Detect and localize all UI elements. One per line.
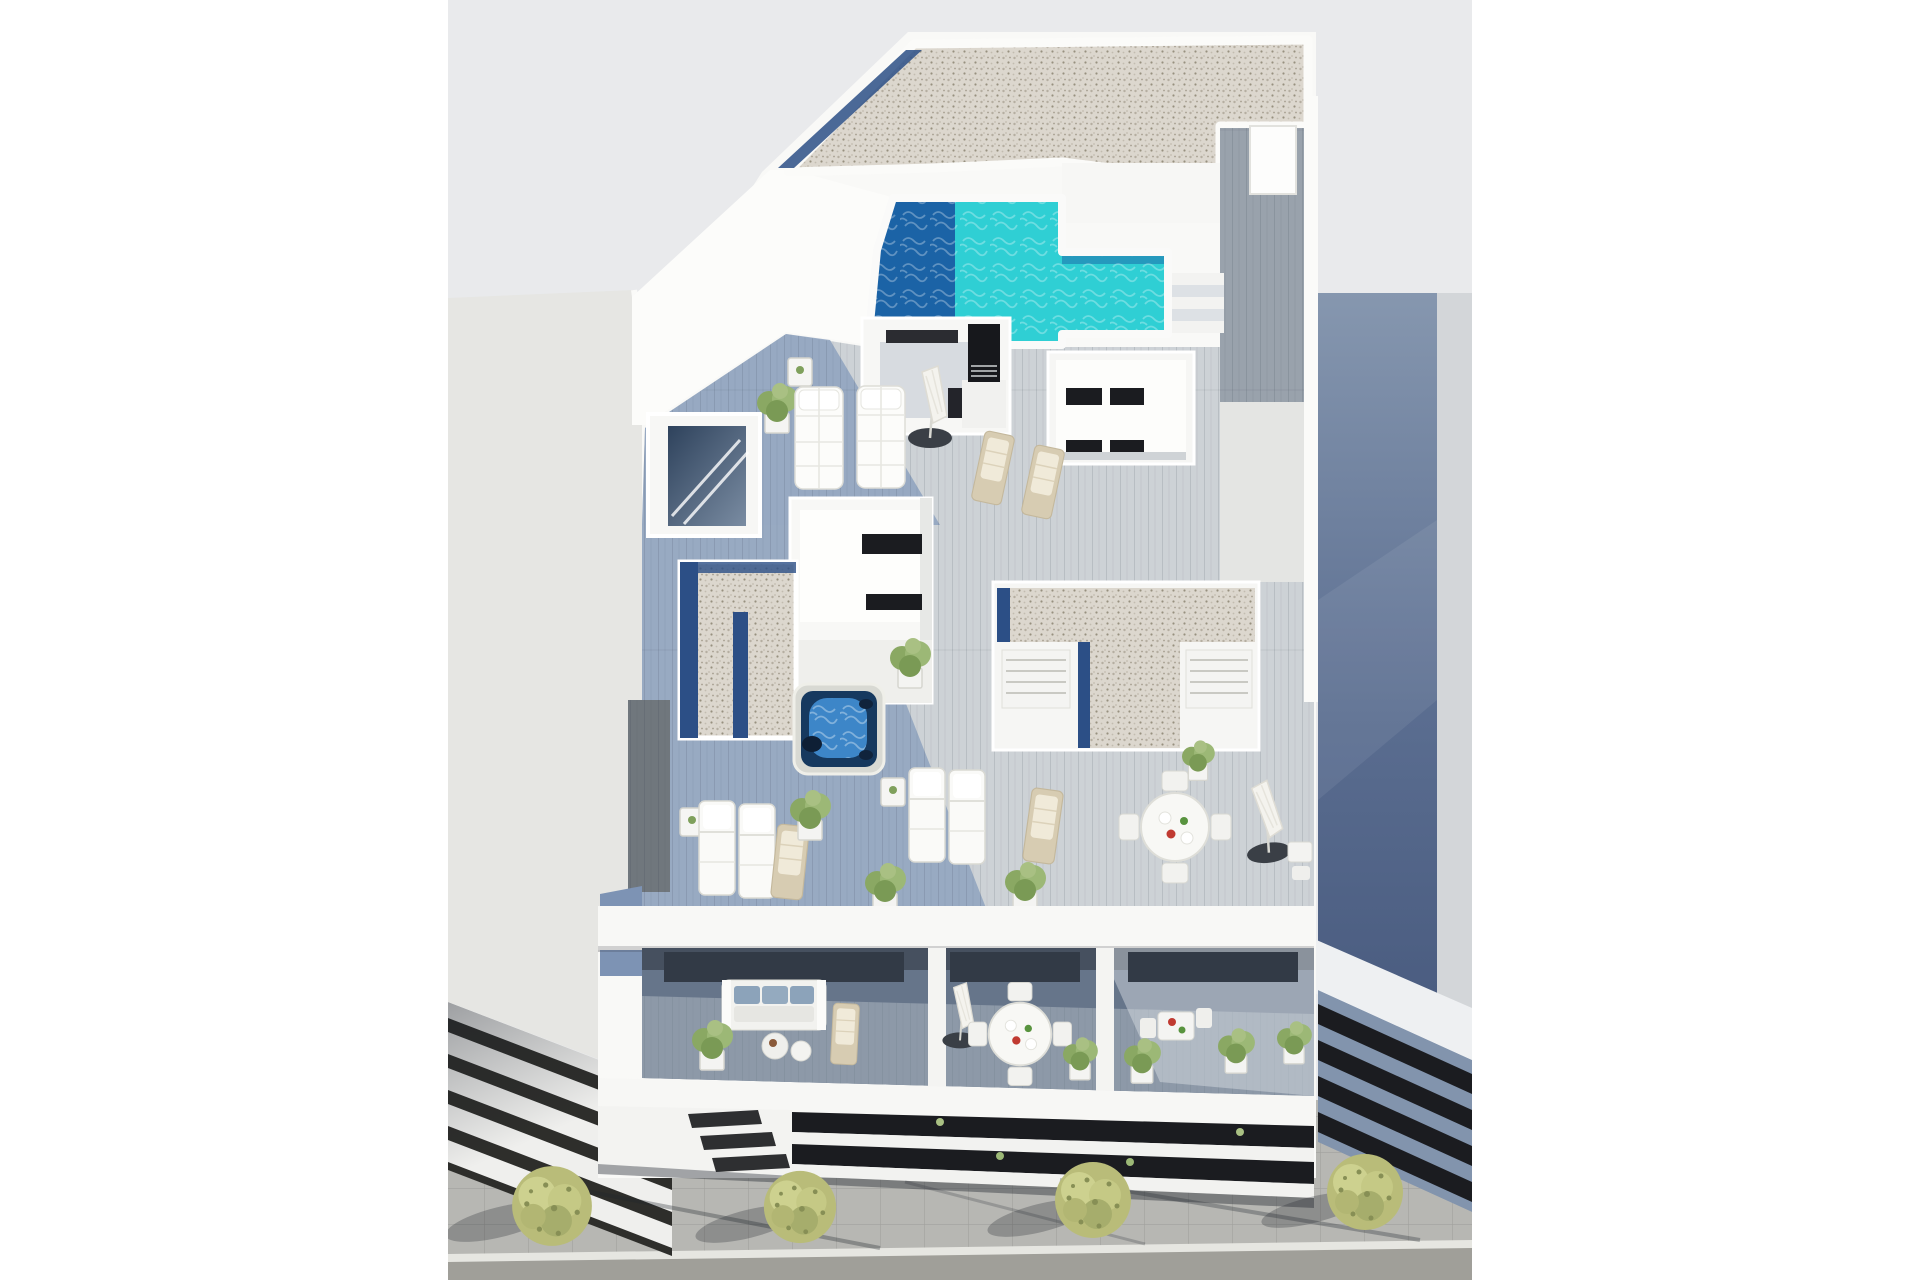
facade-plant — [1126, 1158, 1134, 1166]
coffee-table-item — [769, 1039, 777, 1047]
coffee-table — [791, 1041, 811, 1061]
gravel-strip-roof: Lower gravel roof — [680, 562, 796, 738]
terrace-flank-grain — [628, 700, 670, 892]
lounge-chair — [830, 1003, 859, 1065]
pool-north-parapet — [1062, 163, 1220, 223]
daybed — [795, 387, 843, 489]
render-canvas: Aerial render - apartment building with … — [0, 0, 1920, 1280]
facade-plant — [996, 1152, 1004, 1160]
balcony-pier — [1096, 948, 1114, 1092]
bistro-chair — [1140, 1018, 1156, 1038]
table-item-green — [1179, 1027, 1186, 1034]
tree — [512, 1166, 592, 1246]
chimney: Ventilation chimney — [962, 324, 1006, 428]
walkway-parapet — [1304, 96, 1318, 702]
glass-door — [1128, 952, 1298, 982]
louver-door-left — [1002, 650, 1070, 708]
sun-lounger — [909, 768, 945, 862]
bistro-chair — [1196, 1008, 1212, 1028]
glass-door — [664, 952, 904, 982]
sun-lounger — [949, 770, 985, 864]
storage-volume: Roof volume with louvered doors — [993, 582, 1259, 750]
jacuzzi: Jacuzzi hot tub — [794, 684, 884, 774]
right-building: Neighbouring building (right) Louvered f… — [1312, 293, 1472, 1212]
terrace-parapet — [598, 906, 1314, 950]
sun-lounger — [739, 804, 775, 898]
facade-plant — [936, 1118, 944, 1126]
bistro-table — [1158, 1012, 1194, 1040]
sofa: Outdoor sofa with blue cushions — [722, 980, 826, 1030]
side-table — [788, 358, 812, 386]
roof-door: Roof access door — [1250, 126, 1296, 194]
tree — [1327, 1154, 1403, 1230]
screenshot: Aerial render - apartment building with … — [0, 0, 1920, 1280]
balcony-pier — [928, 948, 946, 1088]
tree — [1055, 1162, 1131, 1238]
tree — [764, 1171, 836, 1243]
walkway-light-deck — [1220, 402, 1304, 582]
daybed — [857, 386, 905, 488]
side-table — [881, 778, 905, 806]
glass-door — [950, 952, 1080, 982]
bistro-table — [1288, 842, 1312, 862]
louver-door-right — [1186, 650, 1252, 708]
roof-courtyard-east: Rooftop courtyard volume — [1048, 352, 1194, 464]
stair-skylight: Stairwell skylight — [648, 414, 760, 536]
balconies: Apartment balconies Outdoor sofa with bl… — [598, 906, 1314, 1096]
table-item-red — [1168, 1018, 1176, 1026]
bistro-chair — [1292, 866, 1310, 880]
pool-steps: Pool steps — [1172, 273, 1224, 333]
facade-plant — [1236, 1128, 1244, 1136]
sun-lounger — [699, 801, 735, 895]
